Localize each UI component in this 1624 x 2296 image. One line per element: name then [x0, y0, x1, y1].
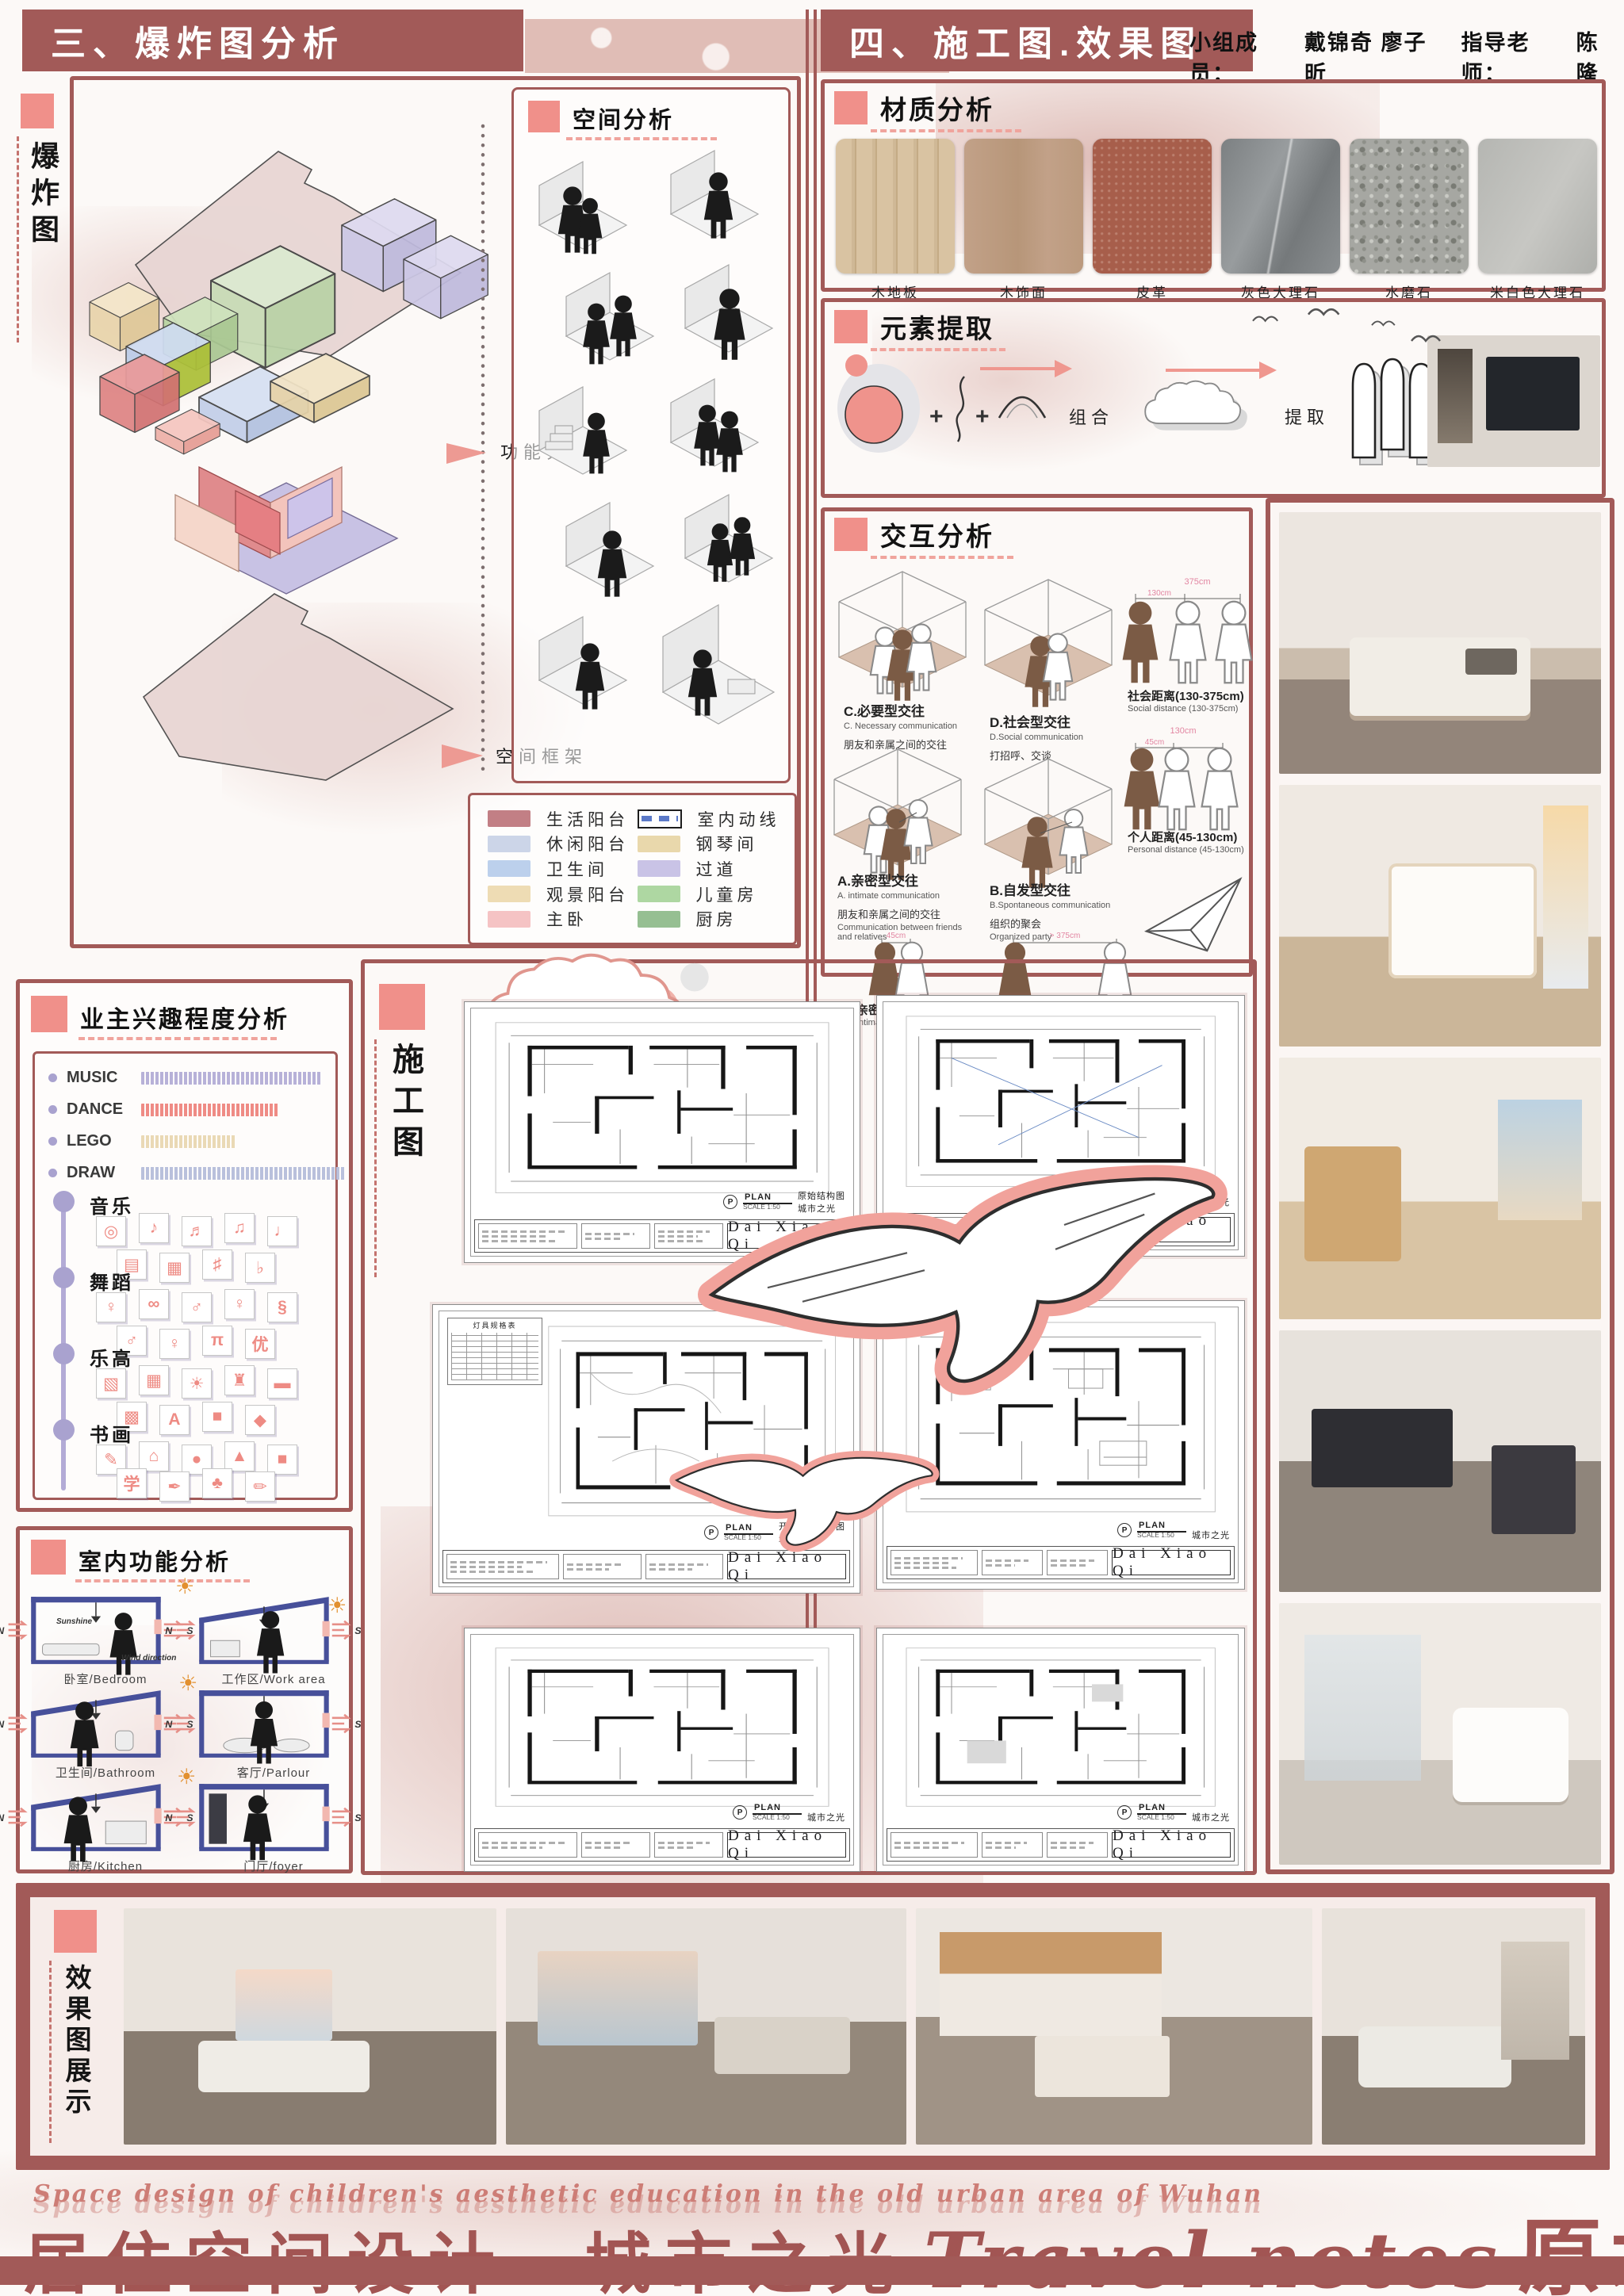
- squiggle-element-icon: [950, 375, 974, 443]
- bar-draw: [141, 1167, 346, 1180]
- label-social: D.社会型交往 D.Social communication 打招呼、交谈: [990, 711, 1124, 763]
- cube-diagram-spontaneous: [985, 759, 1112, 878]
- legend-item: 休闲阳台: [488, 832, 638, 857]
- floor-plan-drawing: [905, 1015, 1216, 1188]
- category-music: 音乐: [90, 1191, 134, 1219]
- iso-sketch: [523, 150, 642, 257]
- drum-kit-icon: ♫: [224, 1213, 255, 1243]
- room-caption: 门厅/foyer: [196, 1858, 351, 1874]
- excellent-character-icon: 优: [245, 1329, 275, 1359]
- plan-sheet: P PLANSCALE 1:50 城市之光 Dai Xiao Qi: [876, 1628, 1245, 1872]
- footer-bar: [0, 2256, 1624, 2285]
- header-square-icon: [528, 101, 560, 132]
- function-card-bedroom: N S Sunshine Wind direction 卧室/Bedroom: [28, 1594, 183, 1687]
- legend-swatch: [638, 860, 680, 877]
- svg-text:130cm: 130cm: [1170, 726, 1196, 736]
- exploded-side-label: 爆炸图: [22, 141, 63, 251]
- header-square-icon: [31, 1540, 66, 1575]
- label-personal-distance: 个人距离(45-130cm) Personal distance (45-130…: [1128, 828, 1244, 855]
- quill-ink-icon: ✒: [159, 1471, 190, 1502]
- section-diagram-foyer: N S: [196, 1781, 335, 1855]
- function-card-kitchen: N S 厨房/Kitchen: [28, 1781, 183, 1874]
- renders-band: 效果图展示: [16, 1883, 1610, 2170]
- header-dash-underline: [871, 129, 1021, 132]
- ballet-shoes-icon: ∞: [139, 1289, 169, 1319]
- sunshine-label: Sunshine: [56, 1617, 92, 1626]
- svg-text:N: N: [165, 1625, 173, 1636]
- bar-label: MUSIC: [67, 1069, 132, 1087]
- legend-item: 儿童房: [638, 882, 787, 907]
- maracas-icon: ♭: [245, 1253, 275, 1283]
- legend-swatch: [488, 911, 530, 928]
- designer-name: Dai Xiao Qi: [1112, 1550, 1231, 1575]
- record-icon: ◎: [96, 1216, 126, 1246]
- functions-title: 室内功能分析: [79, 1551, 231, 1575]
- svg-text:45cm: 45cm: [887, 932, 906, 940]
- barre-icon: π: [202, 1326, 232, 1356]
- distance-diagram-social: 375cm 130cm: [1121, 575, 1248, 682]
- construction-panel: 施工图 P PLANSCALE 1:50 原始结构图城市之光: [361, 959, 1257, 1875]
- header-dash-underline: [871, 556, 1013, 559]
- plans-side-dash: [374, 1039, 377, 1277]
- material-swatch-wood-floor: [836, 139, 955, 274]
- title-block: Dai Xiao Qi: [474, 1828, 850, 1862]
- category-painting: 书画: [90, 1419, 134, 1447]
- section-diagram-parlour: N S: [196, 1687, 335, 1762]
- bar-label: LEGO: [67, 1132, 132, 1150]
- section-diagram-workarea: N S: [196, 1594, 335, 1668]
- iso-sketch: [669, 483, 788, 590]
- advisor-name: 陈隆: [1576, 25, 1618, 87]
- electric-guitar-icon: ♯: [202, 1249, 232, 1280]
- violin-icon: ♬: [182, 1216, 212, 1246]
- team-credits: 小组成员： 戴锦奇 廖子昕 指导老师： 陈隆: [1189, 25, 1618, 87]
- room-caption: 卧室/Bedroom: [28, 1670, 183, 1687]
- legend-item: 观景阳台: [488, 882, 638, 907]
- plan-tag: P PLANSCALE 1:50 城市之光: [733, 1801, 845, 1823]
- bar-dance: [141, 1104, 279, 1116]
- sheet-music-icon: ♪: [139, 1213, 169, 1243]
- materials-panel: 材质分析 木地板 木饰面 皮革 灰色大理石 水磨石 米白色大理石: [821, 79, 1606, 292]
- legend-swatch: [488, 886, 530, 902]
- photo-bathroom: [1279, 1603, 1601, 1865]
- room-caption: 厨房/Kitchen: [28, 1858, 183, 1874]
- legend-item: 厨房: [638, 906, 787, 932]
- renders-side-label: 效果图展示: [57, 1964, 95, 2118]
- plan-tag: P PLANSCALE 1:50 城市之光: [1117, 1801, 1230, 1823]
- section-diagram-bathroom: N S: [28, 1687, 167, 1762]
- header-square-icon: [834, 310, 868, 343]
- legend-item: 钢琴间: [638, 832, 787, 857]
- function-card-bathroom: N S 卫生间/Bathroom: [28, 1687, 183, 1781]
- iso-sketch: [655, 367, 774, 474]
- renders-side-dash: [49, 1961, 52, 2143]
- room-caption: 卫生间/Bathroom: [28, 1764, 183, 1781]
- interest-title: 业主兴趣程度分析: [80, 1008, 289, 1033]
- photo-children-study-room: [1279, 1058, 1601, 1319]
- paint-tube-icon: ✏: [245, 1471, 275, 1502]
- iso-sketch: [669, 253, 788, 360]
- flow-arrow: [1166, 369, 1261, 372]
- svg-text:N: N: [0, 1812, 5, 1823]
- bar-label: DANCE: [67, 1100, 132, 1119]
- timeline-node: [53, 1419, 75, 1441]
- legend-item: 生活阳台: [488, 806, 638, 832]
- rubiks-cube-icon: ◆: [245, 1405, 275, 1435]
- book-stack-icon: ▧: [96, 1368, 126, 1399]
- render-photo-column: [1266, 498, 1614, 1874]
- material-swatch-gray-marble: [1221, 139, 1340, 274]
- section-header-exploded-label: 三、爆炸图分析: [51, 15, 345, 66]
- timeline-node: [53, 1343, 75, 1364]
- interest-header: 业主兴趣程度分析: [31, 996, 289, 1032]
- room-caption: 客厅/Parlour: [196, 1764, 351, 1781]
- plans-side-square: [379, 984, 425, 1030]
- castle-icon: ♜: [224, 1365, 255, 1395]
- photo-kitchen-dining: [916, 1908, 1312, 2145]
- legend-item: 主卧: [488, 906, 638, 932]
- timeline-node: [53, 1191, 75, 1212]
- eraser-icon: ■: [267, 1445, 297, 1475]
- plans-side-label: 施工图: [382, 1043, 428, 1166]
- section-header-construction: 四、施工图.效果图: [821, 10, 1253, 71]
- interaction-header: 交互分析: [834, 518, 994, 551]
- pavilion-icon: ⌂: [139, 1441, 169, 1471]
- lego-brick-icon: ▦: [139, 1365, 169, 1395]
- material-swatch-terrazzo: [1350, 139, 1469, 274]
- tree-icon: ♣: [202, 1468, 232, 1498]
- elements-panel: 元素提取 + + 组合 提取: [821, 298, 1606, 498]
- function-card-parlour: N S 客厅/Parlour: [196, 1687, 351, 1781]
- legend-swatch: [638, 836, 680, 852]
- wind-direction-label: Wind direction: [121, 1654, 176, 1663]
- bullet-dot-icon: [48, 1137, 57, 1146]
- seagull-illustration: [698, 1169, 1221, 1455]
- label-necessary: C.必要型交往 C. Necessary communication 朋友和亲属…: [844, 700, 979, 752]
- function-card-foyer: N S 门厅/foyer: [196, 1781, 351, 1874]
- exploded-axon-diagram: [80, 94, 508, 792]
- section-header-construction-label: 四、施工图.效果图: [849, 15, 1202, 66]
- swirl-icon: §: [267, 1292, 297, 1322]
- bar-label: DRAW: [67, 1164, 132, 1182]
- exploded-panel: 功能分区 空间框架 空间分析: [70, 76, 801, 948]
- iso-sketch: [655, 139, 774, 246]
- interest-bar-row: DANCE: [48, 1100, 279, 1119]
- header-dash-underline: [75, 1579, 250, 1582]
- legend-swatch: [638, 911, 680, 928]
- header-square-icon: [31, 996, 67, 1032]
- floor-plan-drawing: [905, 1647, 1216, 1808]
- flow-arrow: [980, 367, 1056, 370]
- interest-bar-row: DRAW: [48, 1164, 346, 1182]
- bullet-dot-icon: [48, 1105, 57, 1114]
- materials-title: 材质分析: [880, 97, 994, 124]
- ballerina-icon: ♂: [182, 1292, 212, 1322]
- bar-music: [141, 1072, 322, 1085]
- svg-text:N: N: [0, 1719, 5, 1730]
- section-header-exploded: 三、爆炸图分析: [22, 10, 523, 71]
- legend-swatch: [488, 836, 530, 852]
- svg-text:N: N: [165, 1719, 173, 1730]
- designer-name: Dai Xiao Qi: [727, 1832, 846, 1858]
- paper-birds-sketch: [1253, 307, 1443, 354]
- material-swatch-beige-marble: [1478, 139, 1597, 274]
- iso-sketch: [523, 605, 642, 712]
- circle-element-icon: [833, 351, 928, 454]
- cube-diagram-intimate: [834, 749, 961, 868]
- interaction-panel: 交互分析 C.必要型交往 C. Necessary communication …: [821, 507, 1253, 977]
- lamp-spec-table: 灯具规格表: [447, 1318, 542, 1385]
- route-dashes-icon: [638, 809, 682, 828]
- material-swatch-leather: [1093, 139, 1212, 274]
- combine-label: 组合: [1069, 404, 1113, 429]
- bar-lego: [141, 1135, 236, 1148]
- plus-sign: +: [975, 404, 990, 430]
- exploded-side-dash: [17, 136, 19, 342]
- distance-diagram-personal: 130cm 45cm: [1121, 724, 1248, 827]
- legend-swatch: [488, 860, 530, 877]
- designer-name: Dai Xiao Qi: [1112, 1832, 1231, 1858]
- legend-swatch: [638, 886, 680, 902]
- brick-piece-icon: ▬: [267, 1368, 297, 1399]
- cube-diagram-necessary: [839, 572, 966, 691]
- legend-item: 卫生间: [488, 856, 638, 882]
- extract-label: 提取: [1285, 404, 1329, 429]
- photo-children-bunk-room: [1279, 785, 1601, 1047]
- plus-sign: +: [929, 404, 944, 430]
- interest-bar-row: MUSIC: [48, 1069, 322, 1087]
- photo-living-room: [124, 1908, 496, 2145]
- mountains-icon: ▲: [224, 1441, 255, 1471]
- svg-text:N: N: [0, 1625, 5, 1636]
- room-caption: 工作区/Work area: [196, 1670, 351, 1687]
- photo-tv-background-wall: [1427, 335, 1600, 467]
- materials-header: 材质分析: [834, 91, 994, 124]
- exploded-side-square: [21, 94, 54, 128]
- legend-swatch: [488, 810, 530, 827]
- function-card-workarea: N S 工作区/Work area: [196, 1594, 351, 1687]
- bullet-dot-icon: [48, 1073, 57, 1082]
- abc-blocks-icon: A: [159, 1405, 190, 1435]
- legend-item: 过道: [638, 856, 787, 882]
- material-swatch-wood-veneer: [964, 139, 1083, 274]
- functions-panel: 室内功能分析 ☀ ☀ ☀ ☀ N S Sunshine Wind directi…: [16, 1526, 353, 1873]
- bullet-dot-icon: [48, 1169, 57, 1177]
- header-square-icon: [834, 91, 868, 124]
- floor-plan-drawing: [494, 1021, 830, 1194]
- team-members: 戴锦奇 廖子昕: [1304, 25, 1436, 87]
- dancer-icon: ♀: [96, 1292, 126, 1322]
- exploded-legend: 生活阳台 休闲阳台 卫生间 观景阳台 主卧 室内动线 钢琴间 过道 儿童房 厨房: [468, 793, 797, 945]
- calligraphy-icon: 学: [117, 1468, 147, 1498]
- design-poster: 三、爆炸图分析 四、施工图.效果图 小组成员： 戴锦奇 廖子昕 指导老师： 陈隆…: [0, 0, 1624, 2296]
- timeline-node: [53, 1267, 75, 1288]
- brick-icon: ■: [202, 1402, 232, 1432]
- svg-text:> 375cm: > 375cm: [1050, 932, 1081, 940]
- svg-text:45cm: 45cm: [1145, 738, 1164, 747]
- svg-text:130cm: 130cm: [1147, 589, 1171, 598]
- plan-sheet: P PLANSCALE 1:50 城市之光 Dai Xiao Qi: [464, 1628, 860, 1872]
- cube-diagram-social: [985, 580, 1112, 698]
- iso-sketch: [550, 491, 669, 598]
- cloud-element-icon: [1140, 378, 1259, 446]
- iso-sketch: [523, 375, 642, 482]
- acrobat-icon: ♀: [159, 1329, 190, 1359]
- category-lego: 乐高: [90, 1343, 134, 1371]
- iso-sketch-large: [655, 597, 782, 756]
- light-bulb-icon: ☀: [182, 1368, 212, 1399]
- interest-panel: 业主兴趣程度分析 MUSIC DANCE LEGO DRAW 音乐 ◎ ♪: [16, 979, 353, 1512]
- plan-tag: P PLANSCALE 1:50 城市之光: [1117, 1519, 1230, 1541]
- arch-element-icon: [996, 383, 1048, 421]
- section-diagram-kitchen: N S: [28, 1781, 167, 1855]
- title-block: Dai Xiao Qi: [887, 1546, 1235, 1579]
- header-dash-underline: [79, 1037, 277, 1040]
- title-block: Dai Xiao Qi: [887, 1828, 1235, 1862]
- elements-header: 元素提取: [834, 310, 994, 343]
- photo-lounge: [1322, 1908, 1585, 2145]
- floor-plan-drawing: [494, 1647, 830, 1808]
- svg-text:N: N: [165, 1812, 173, 1823]
- keyboard-icon: ▦: [159, 1253, 190, 1283]
- photo-workspace-view: [506, 1908, 906, 2145]
- space-analysis-panel: 空间分析: [511, 87, 791, 783]
- label-social-distance: 社会距离(130-375cm) Social distance (130-375…: [1128, 687, 1244, 714]
- functions-header: 室内功能分析: [31, 1540, 231, 1575]
- saxophone-icon: ♩: [267, 1216, 297, 1246]
- legend-item-route: 室内动线: [638, 806, 787, 832]
- category-dance: 舞蹈: [90, 1267, 134, 1295]
- interaction-title: 交互分析: [880, 523, 994, 551]
- space-analysis-header: 空间分析: [528, 101, 674, 132]
- space-analysis-title: 空间分析: [573, 109, 674, 132]
- team-members-label: 小组成员：: [1189, 25, 1293, 87]
- dance-couple-icon: ♀: [224, 1289, 255, 1319]
- iso-sketch: [550, 261, 669, 368]
- advisor-label: 指导老师：: [1461, 25, 1565, 87]
- interest-bar-row: LEGO: [48, 1132, 236, 1150]
- elements-title: 元素提取: [880, 316, 994, 343]
- svg-text:375cm: 375cm: [1184, 577, 1210, 587]
- photo-master-bedroom: [1279, 512, 1601, 774]
- renders-side-square: [54, 1910, 97, 1953]
- header-square-icon: [834, 518, 868, 551]
- photo-piano-study-room: [1279, 1330, 1601, 1592]
